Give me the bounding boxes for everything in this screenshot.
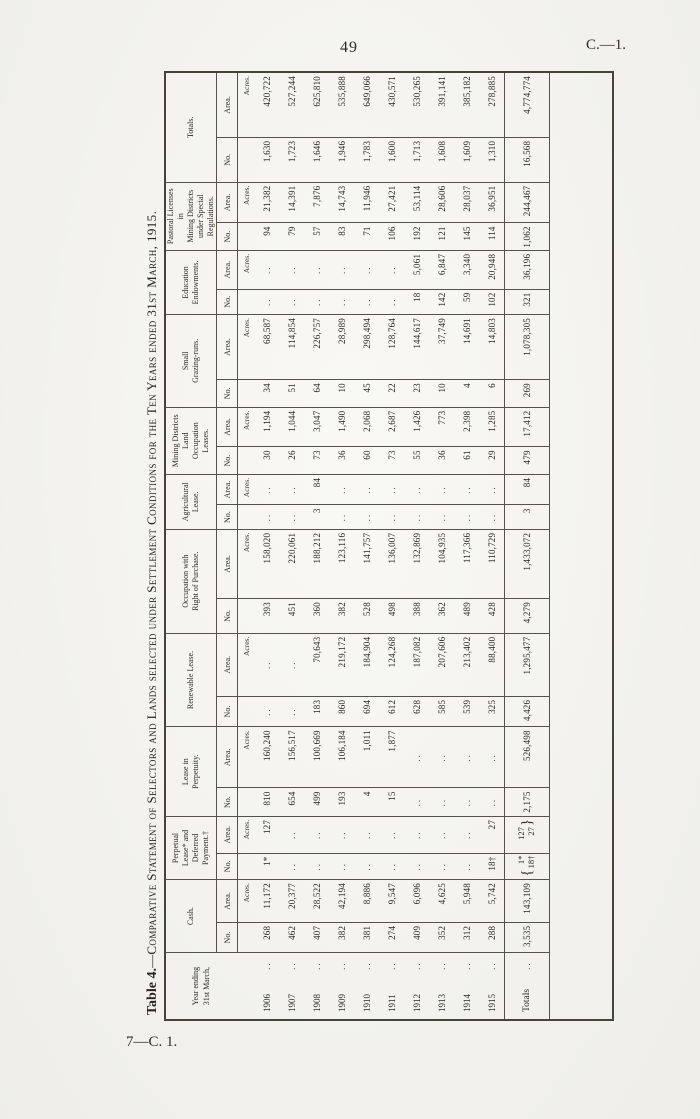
cell-1911-6: 612 (379, 696, 404, 727)
comparative-statement-table: Year ending 31st March,Cash.Perpetual Le… (164, 71, 614, 1021)
cell-1906-4: 810 (254, 788, 279, 817)
totals-row: Totals..3,535143,109{1*18†12727}2,175526… (505, 72, 550, 1020)
totals-cell-17: 36,196 (505, 250, 550, 289)
cell-1913-19: 28,606 (429, 182, 454, 223)
cell-1910-6: 694 (354, 696, 379, 727)
group-header-2: Lease in Perpetuity. (165, 727, 217, 817)
cell-1906-3: 127 (254, 816, 279, 853)
row-leader-dots: .. (412, 961, 422, 970)
cell-1908-0: 407 (304, 922, 329, 953)
cell-1907-8: 451 (279, 599, 304, 634)
cell-1911-1: 9,547 (379, 880, 404, 923)
totals-cell-6: 4,426 (505, 696, 550, 727)
cell-1914-0: 312 (454, 922, 479, 953)
cell-1908-17-empty: .. (304, 250, 329, 289)
subheader-area-3: Area. (217, 633, 238, 696)
cell-1915-7: 88,400 (479, 633, 505, 696)
cell-1913-17: 6,847 (429, 250, 454, 289)
cell-1915-6: 325 (479, 696, 505, 727)
subheader-area-8: Area. (217, 250, 238, 289)
cell-1911-3-empty: .. (379, 816, 404, 853)
cell-1912-2-empty: .. (404, 853, 429, 879)
unit-label-9: Acres. (238, 182, 255, 223)
cell-1914-8: 489 (454, 599, 479, 634)
group-header-6: Mining Districts Land Occupation Leases. (165, 407, 217, 474)
cell-1908-15: 226,757 (304, 314, 329, 379)
cell-1915-12: 29 (479, 447, 505, 474)
cell-1907-6-empty: .. (279, 696, 304, 727)
cell-1909-9: 123,116 (329, 529, 354, 598)
cell-1908-10: 3 (304, 505, 329, 529)
row-leader-dots: .. (337, 961, 347, 970)
cell-1911-16-empty: .. (379, 289, 404, 314)
subheader-area-0: Area. (217, 880, 238, 923)
totals-cell-13: 17,412 (505, 407, 550, 447)
cell-1908-7: 70,643 (304, 633, 329, 696)
subheader-no-4: No. (217, 599, 238, 634)
unit-label-7: Acres. (238, 314, 255, 379)
subheader-area-10: Area. (217, 72, 238, 137)
cell-1914-3-empty: .. (454, 816, 479, 853)
brace-glyph: { (520, 869, 535, 876)
subheader-no-10: No. (217, 137, 238, 182)
cell-1910-16-empty: .. (354, 289, 379, 314)
cell-1909-13: 1,490 (329, 407, 354, 447)
cell-1914-21: 385,182 (454, 72, 479, 137)
unit-label-10: Acres. (238, 72, 255, 137)
cell-1914-9: 117,366 (454, 529, 479, 598)
cell-1909-17-empty: .. (329, 250, 354, 289)
cell-1908-1: 28,522 (304, 880, 329, 923)
cell-1909-18: 83 (329, 223, 354, 250)
cell-1913-6: 585 (429, 696, 454, 727)
cell-1915-14: 6 (479, 380, 505, 407)
cell-1914-10-empty: .. (454, 505, 479, 529)
cell-1910-8: 528 (354, 599, 379, 634)
table-title-text: —Comparative Statement of Selectors and … (144, 211, 159, 968)
table-row-1915: 1915..2885,74218†27....32588,400428110,7… (479, 72, 505, 1020)
cell-1912-20: 1,713 (404, 137, 429, 182)
cell-1909-16-empty: .. (329, 289, 354, 314)
cell-1907-7-empty: .. (279, 633, 304, 696)
subheader-no-2: No. (217, 788, 238, 817)
cell-1912-19: 53,114 (404, 182, 429, 223)
totals-cell-21: 4,774,774 (505, 72, 550, 137)
totals-cell-20: 16,568 (505, 137, 550, 182)
cell-1911-15: 128,764 (379, 314, 404, 379)
cell-1909-19: 14,743 (329, 182, 354, 223)
cell-1907-5: 156,517 (279, 727, 304, 788)
cell-1910-4: 4 (354, 788, 379, 817)
cell-1915-11-empty: .. (479, 474, 505, 505)
cell-1911-21: 430,571 (379, 72, 404, 137)
cell-1910-5: 1,011 (354, 727, 379, 788)
page-number: 49 (340, 39, 358, 57)
rotated-table-block: Table 4.—Comparative Statement of Select… (140, 71, 612, 1021)
cell-1909-15: 28,989 (329, 314, 354, 379)
row-leader-dots: .. (522, 961, 532, 970)
cell-1907-18: 79 (279, 223, 304, 250)
cell-1910-18: 71 (354, 223, 379, 250)
table-row-1906: 1906..26811,1721*127810160,240....393158… (254, 72, 279, 1020)
cell-1906-20: 1,630 (254, 137, 279, 182)
cell-1910-11-empty: .. (354, 474, 379, 505)
cell-1914-4-empty: .. (454, 788, 479, 817)
cell-1913-4-empty: .. (429, 788, 454, 817)
cell-1907-3-empty: .. (279, 816, 304, 853)
cell-1913-21: 391,141 (429, 72, 454, 137)
row-leader-dots: .. (387, 961, 397, 970)
cell-1913-1: 4,625 (429, 880, 454, 923)
row-leader-dots: .. (462, 961, 472, 970)
group-header-0: Cash. (165, 880, 217, 953)
table-row-1913: 1913..3524,625........585207,606362104,9… (429, 72, 454, 1020)
cell-1911-11-empty: .. (379, 474, 404, 505)
row-leader-dots: .. (487, 961, 497, 970)
cell-1908-21: 625,810 (304, 72, 329, 137)
row-label: 1915.. (479, 953, 505, 1020)
cell-1915-1: 5,742 (479, 880, 505, 923)
cell-1914-12: 61 (454, 447, 479, 474)
cell-1912-8: 388 (404, 599, 429, 634)
cell-1908-19: 7,876 (304, 182, 329, 223)
cell-1912-10-empty: .. (404, 505, 429, 529)
cell-1913-11-empty: .. (429, 474, 454, 505)
cell-1909-1: 42,194 (329, 880, 354, 923)
cell-1913-20: 1,608 (429, 137, 454, 182)
cell-1907-16-empty: .. (279, 289, 304, 314)
cell-1909-8: 382 (329, 599, 354, 634)
row-label: 1914.. (454, 953, 479, 1020)
cell-1912-11-empty: .. (404, 474, 429, 505)
cell-1907-1: 20,377 (279, 880, 304, 923)
year-label: 1907 (287, 994, 297, 1012)
cell-1912-1: 6,096 (404, 880, 429, 923)
cell-1906-18: 94 (254, 223, 279, 250)
cell-1907-2-empty: .. (279, 853, 304, 879)
cell-1911-20: 1,600 (379, 137, 404, 182)
cell-1906-7-empty: .. (254, 633, 279, 696)
cell-1908-16-empty: .. (304, 289, 329, 314)
year-label: 1911 (387, 994, 397, 1012)
year-label: 1915 (487, 994, 497, 1012)
cell-1913-2-empty: .. (429, 853, 454, 879)
cell-1912-6: 628 (404, 696, 429, 727)
cell-1908-13: 3,047 (304, 407, 329, 447)
cell-1915-10-empty: .. (479, 505, 505, 529)
cell-1912-16: 18 (404, 289, 429, 314)
table-row-1910: 1910..3818,886....41,011694184,904528141… (354, 72, 379, 1020)
totals-cell-11: 84 (505, 474, 550, 505)
totals-cell-1: 143,109 (505, 880, 550, 923)
row-leader-dots: .. (312, 961, 322, 970)
cell-1910-1: 8,886 (354, 880, 379, 923)
cell-1914-16: 59 (454, 289, 479, 314)
cell-1914-19: 28,037 (454, 182, 479, 223)
cell-1915-3: 27 (479, 816, 505, 853)
cell-1912-18: 192 (404, 223, 429, 250)
cell-1913-5-empty: .. (429, 727, 454, 788)
cell-1912-15: 144,617 (404, 314, 429, 379)
cell-1915-21: 278,885 (479, 72, 505, 137)
unit-label-0: Acres. (238, 880, 255, 923)
cell-1907-13: 1,044 (279, 407, 304, 447)
totals-cell-9: 1,433,072 (505, 529, 550, 598)
cell-1910-3-empty: .. (354, 816, 379, 853)
row-label: 1910.. (354, 953, 379, 1020)
unit-label-4: Acres. (238, 529, 255, 598)
year-label: 1906 (262, 994, 272, 1012)
unit-label-2: Acres. (238, 727, 255, 788)
cell-1907-4: 654 (279, 788, 304, 817)
row-label: 1909.. (329, 953, 354, 1020)
footer-ref: 7—C. 1. (126, 1034, 177, 1051)
cell-1912-4-empty: .. (404, 788, 429, 817)
cell-1914-5-empty: .. (454, 727, 479, 788)
cell-1908-11: 84 (304, 474, 329, 505)
running-head: 49 C.—1. (0, 36, 700, 60)
cell-1915-5-empty: .. (479, 727, 505, 788)
cell-1911-2-empty: .. (379, 853, 404, 879)
subheader-no-5: No. (217, 505, 238, 529)
cell-1907-9: 220,061 (279, 529, 304, 598)
cell-1910-17-empty: .. (354, 250, 379, 289)
cell-1909-0: 382 (329, 922, 354, 953)
cell-1909-2-empty: .. (329, 853, 354, 879)
subheader-no-9: No. (217, 223, 238, 250)
year-label: 1914 (462, 994, 472, 1012)
table-row-1911: 1911..2749,547....151,877612124,26849813… (379, 72, 404, 1020)
cell-1909-6: 860 (329, 696, 354, 727)
cell-1911-14: 22 (379, 380, 404, 407)
cell-1915-8: 428 (479, 599, 505, 634)
cell-1914-13: 2,398 (454, 407, 479, 447)
unit-label-8: Acres. (238, 250, 255, 289)
cell-1915-13: 1,285 (479, 407, 505, 447)
cell-1910-14: 45 (354, 380, 379, 407)
totals-cell-8: 4,279 (505, 599, 550, 634)
table-title: Table 4.—Comparative Statement of Select… (140, 71, 164, 1021)
cell-1915-20: 1,310 (479, 137, 505, 182)
cell-1914-15: 14,691 (454, 314, 479, 379)
subheader-area-9: Area. (217, 182, 238, 223)
cell-1914-14: 4 (454, 380, 479, 407)
cell-1911-7: 124,268 (379, 633, 404, 696)
cell-1909-12: 36 (329, 447, 354, 474)
subheader-area-6: Area. (217, 407, 238, 447)
subheader-no-1: No. (217, 853, 238, 879)
cell-1908-2-empty: .. (304, 853, 329, 879)
cell-1912-12: 55 (404, 447, 429, 474)
cell-1909-3-empty: .. (329, 816, 354, 853)
cell-1912-9: 132,869 (404, 529, 429, 598)
cell-1914-20: 1,609 (454, 137, 479, 182)
cell-1915-0: 288 (479, 922, 505, 953)
cell-1909-20: 1,946 (329, 137, 354, 182)
cell-1911-17-empty: .. (379, 250, 404, 289)
group-header-10: Totals. (165, 72, 217, 182)
subheader-area-2: Area. (217, 727, 238, 788)
cell-1906-8: 393 (254, 599, 279, 634)
acres-row-no-8 (238, 289, 255, 314)
year-column-header: Year ending 31st March, (165, 953, 238, 1020)
cell-1907-0: 462 (279, 922, 304, 953)
acres-row-no-2 (238, 788, 255, 817)
acres-row-no-3 (238, 696, 255, 727)
cell-1908-12: 73 (304, 447, 329, 474)
cell-1909-7: 219,172 (329, 633, 354, 696)
row-label: 1912.. (404, 953, 429, 1020)
cell-1914-11-empty: .. (454, 474, 479, 505)
cell-1912-21: 530,265 (404, 72, 429, 137)
cell-1906-21: 420,722 (254, 72, 279, 137)
cell-1908-3-empty: .. (304, 816, 329, 853)
row-label: 1911.. (379, 953, 404, 1020)
cell-1907-10-empty: .. (279, 505, 304, 529)
unit-label-5: Acres. (238, 474, 255, 505)
cell-1915-15: 14,803 (479, 314, 505, 379)
group-header-5: Agricultural Lease. (165, 474, 217, 529)
cell-1907-12: 26 (279, 447, 304, 474)
acres-row-spacer (238, 953, 255, 1020)
cell-1913-18: 121 (429, 223, 454, 250)
totals-cell-12: 479 (505, 447, 550, 474)
cell-1908-5: 100,669 (304, 727, 329, 788)
row-leader-dots: .. (437, 961, 447, 970)
cell-1908-14: 64 (304, 380, 329, 407)
cell-1907-15: 114,854 (279, 314, 304, 379)
group-header-4: Occupation with Right of Purchase. (165, 529, 217, 633)
acres-row-no-9 (238, 223, 255, 250)
cell-1910-13: 2,068 (354, 407, 379, 447)
totals-cell-16: 321 (505, 289, 550, 314)
cell-1909-11-empty: .. (329, 474, 354, 505)
acres-row-no-0 (238, 922, 255, 953)
cell-1915-16: 102 (479, 289, 505, 314)
cell-1910-19: 11,946 (354, 182, 379, 223)
cell-1907-19: 14,391 (279, 182, 304, 223)
cell-1906-13: 1,194 (254, 407, 279, 447)
cell-1911-8: 498 (379, 599, 404, 634)
cell-1906-9: 158,020 (254, 529, 279, 598)
acres-row-no-5 (238, 505, 255, 529)
cell-1910-2-empty: .. (354, 853, 379, 879)
row-label: 1906.. (254, 953, 279, 1020)
cell-1908-4: 499 (304, 788, 329, 817)
scanned-page: 49 C.—1. Table 4.—Comparative Statement … (0, 0, 700, 1119)
unit-label-1: Acres. (238, 816, 255, 853)
cell-1914-18: 145 (454, 223, 479, 250)
cell-1913-12: 36 (429, 447, 454, 474)
group-header-8: Education Endowments. (165, 250, 217, 314)
cell-1907-11-empty: .. (279, 474, 304, 505)
row-leader-dots: .. (287, 961, 297, 970)
cell-1915-9: 110,729 (479, 529, 505, 598)
cell-1913-10-empty: .. (429, 505, 454, 529)
cell-1914-1: 5,948 (454, 880, 479, 923)
subheader-area-1: Area. (217, 816, 238, 853)
cell-1911-9: 136,007 (379, 529, 404, 598)
cell-1911-13: 2,687 (379, 407, 404, 447)
totals-cell-15: 1,078,305 (505, 314, 550, 379)
subheader-no-7: No. (217, 380, 238, 407)
totals-cell-7: 1,295,477 (505, 633, 550, 696)
cell-1913-3-empty: .. (429, 816, 454, 853)
cell-1906-0: 268 (254, 922, 279, 953)
cell-1912-5-empty: .. (404, 727, 429, 788)
cell-1912-13: 1,426 (404, 407, 429, 447)
cell-1906-12: 30 (254, 447, 279, 474)
cell-1910-21: 649,066 (354, 72, 379, 137)
cell-1909-21: 535,888 (329, 72, 354, 137)
cell-1911-18: 106 (379, 223, 404, 250)
cell-1915-2: 18† (479, 853, 505, 879)
acres-row-no-7 (238, 380, 255, 407)
cell-1913-14: 10 (429, 380, 454, 407)
cell-1906-2: 1* (254, 853, 279, 879)
unit-label-3: Acres. (238, 633, 255, 696)
row-leader-dots: .. (362, 961, 372, 970)
cell-1915-4-empty: .. (479, 788, 505, 817)
doc-ref: C.—1. (586, 37, 626, 54)
cell-1915-17: 20,948 (479, 250, 505, 289)
cell-1911-5: 1,877 (379, 727, 404, 788)
acres-row-no-4 (238, 599, 255, 634)
cell-1907-20: 1,723 (279, 137, 304, 182)
cell-1908-8: 360 (304, 599, 329, 634)
cell-1908-6: 183 (304, 696, 329, 727)
cell-1913-9: 104,935 (429, 529, 454, 598)
totals-cell-19: 244,467 (505, 182, 550, 223)
row-leader-dots: .. (262, 961, 272, 970)
cell-1909-5: 106,184 (329, 727, 354, 788)
cell-1910-7: 184,904 (354, 633, 379, 696)
subheader-area-4: Area. (217, 529, 238, 598)
table-row-1909: 1909..38242,194....193106,184860219,1723… (329, 72, 354, 1020)
year-label: Totals (522, 989, 532, 1012)
cell-1912-17: 5,061 (404, 250, 429, 289)
table-row-1914: 1914..3125,948........539213,402489117,3… (454, 72, 479, 1020)
subheader-no-3: No. (217, 696, 238, 727)
year-label: 1908 (312, 994, 322, 1012)
cell-1914-17: 3,340 (454, 250, 479, 289)
totals-cell-5: 526,498 (505, 727, 550, 788)
subheader-no-8: No. (217, 289, 238, 314)
totals-cell-3-braced: 12727} (505, 816, 550, 853)
acres-row-no-10 (238, 137, 255, 182)
cell-1914-2-empty: .. (454, 853, 479, 879)
totals-cell-18: 1,062 (505, 223, 550, 250)
cell-1911-4: 15 (379, 788, 404, 817)
unit-label-6: Acres. (238, 407, 255, 447)
cell-1906-5: 160,240 (254, 727, 279, 788)
year-label: 1910 (362, 994, 372, 1012)
cell-1910-15: 298,494 (354, 314, 379, 379)
row-label: 1913.. (429, 953, 454, 1020)
acres-row-no-6 (238, 447, 255, 474)
totals-cell-2-braced: {1*18† (505, 853, 550, 879)
cell-1912-3-empty: .. (404, 816, 429, 853)
cell-1911-10-empty: .. (379, 505, 404, 529)
table-row-1912: 1912..4096,096........628187,082388132,8… (404, 72, 429, 1020)
table-row-1907: 1907..46220,377....654156,517....451220,… (279, 72, 304, 1020)
table-row-1908: 1908..40728,522....499100,66918370,64336… (304, 72, 329, 1020)
cell-1907-21: 527,244 (279, 72, 304, 137)
cell-1906-19: 21,382 (254, 182, 279, 223)
cell-1908-20: 1,646 (304, 137, 329, 182)
cell-1913-15: 37,749 (429, 314, 454, 379)
totals-cell-4: 2,175 (505, 788, 550, 817)
